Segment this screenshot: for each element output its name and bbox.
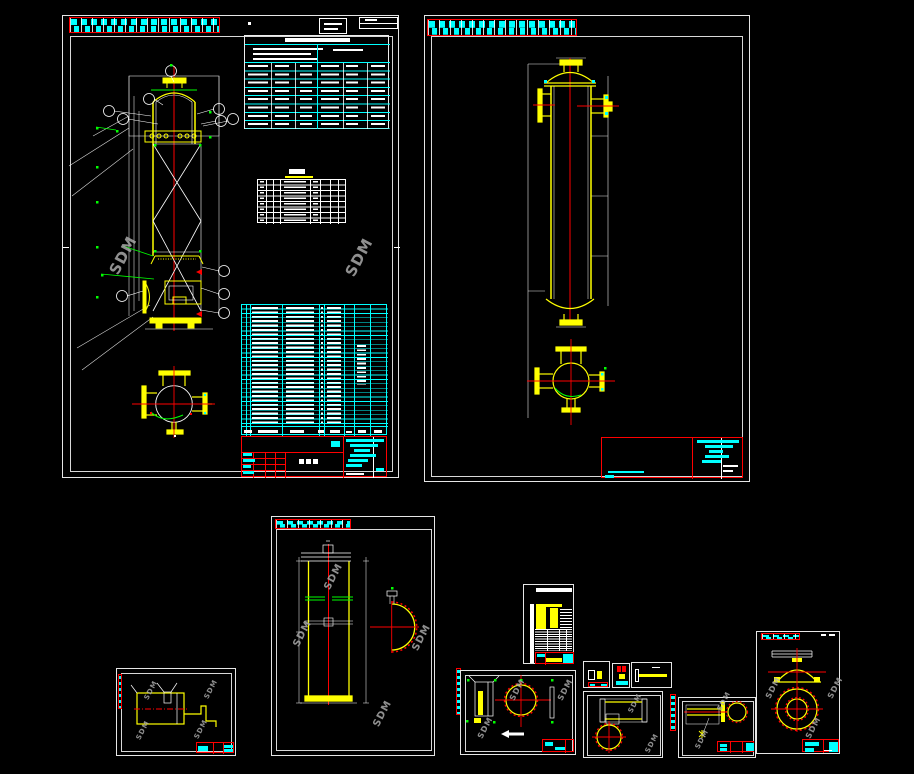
- table-header-bar: [536, 588, 572, 592]
- plan-view: [527, 339, 615, 425]
- block-line: [265, 452, 266, 478]
- table-line: [282, 305, 283, 436]
- title-text-bar: [709, 450, 723, 453]
- sleeve-side-view: [600, 699, 647, 724]
- table-line: [271, 63, 272, 129]
- sheet-shell-detail[interactable]: SDM SDM SDM SDM: [271, 516, 435, 756]
- block-line: [253, 452, 254, 478]
- side-nozzles: [538, 89, 612, 122]
- drawing-name-blob: [299, 459, 304, 464]
- shell-inner-lines: [554, 86, 588, 299]
- title-text-bar: [537, 654, 545, 657]
- table-line: [547, 629, 548, 651]
- table-line: [320, 180, 321, 224]
- cell-text-blobs: [321, 307, 323, 424]
- table-text-blob: [253, 48, 323, 50]
- cell-text-blobs: [284, 181, 306, 223]
- sheet-flange-detail[interactable]: SDM SDM SDM: [460, 670, 576, 755]
- table-title-blob: [285, 38, 350, 42]
- block-line: [565, 740, 566, 753]
- table-text-blob: [723, 465, 738, 467]
- sheet-detail-card-c[interactable]: [631, 662, 672, 688]
- cell-text-blobs: [321, 65, 339, 127]
- title-text-bar: [805, 748, 814, 752]
- title-text-bar: [346, 439, 384, 442]
- table-line: [338, 180, 339, 224]
- table-line: [280, 180, 281, 224]
- bom-header-row: [242, 426, 388, 436]
- table-line: [246, 305, 247, 436]
- table-text-blob: [253, 53, 311, 55]
- sheet-head-detail[interactable]: SDM SDM SDM: [756, 631, 840, 754]
- title-text-bar: [354, 449, 370, 452]
- title-text-bar: [746, 743, 754, 751]
- cell-text-blobs: [346, 65, 358, 127]
- nozzle-table-title-blob: [289, 169, 305, 174]
- side-view: [469, 676, 499, 716]
- cell-text-blobs: [371, 65, 385, 127]
- title-text-bar: [350, 444, 378, 447]
- table-text-blob: [824, 750, 832, 751]
- shell-inner-lines: [153, 95, 201, 311]
- title-block[interactable]: [542, 739, 574, 752]
- table-text-blob: [244, 430, 252, 433]
- table-line: [324, 305, 325, 436]
- title-underline: [285, 176, 313, 178]
- sheet-nozzle-detail[interactable]: SDM SDM: [678, 697, 756, 758]
- title-block[interactable]: [802, 739, 839, 752]
- cell-text-blobs: [357, 345, 366, 385]
- table-text-blob: [290, 430, 304, 433]
- block-line: [692, 438, 693, 479]
- title-text-bar: [702, 460, 721, 463]
- nozzle-orientation-view: [132, 366, 215, 438]
- title-text-bar: [705, 445, 733, 448]
- table-text-blob: [333, 49, 363, 51]
- leader-line: [652, 667, 660, 668]
- title-text-bar: [555, 747, 565, 750]
- table-line: [317, 44, 318, 129]
- title-text-bar: [590, 684, 595, 686]
- drawing-name-blob: [313, 459, 318, 464]
- nozzle-face-view: [727, 702, 748, 723]
- signature-bar: [243, 459, 255, 462]
- block-line: [213, 743, 214, 754]
- signature-bar: [243, 465, 251, 468]
- block-line: [730, 742, 731, 753]
- title-text-bar: [198, 746, 208, 751]
- table-line: [566, 629, 567, 651]
- nozzle-table[interactable]: [257, 179, 346, 223]
- table-text-blob: [346, 431, 352, 433]
- highlight-column: [536, 607, 546, 629]
- table-line: [344, 305, 345, 436]
- cad-canvas[interactable]: SDM SDM: [0, 0, 914, 774]
- part-fill: [597, 671, 602, 679]
- cell-text-blobs: [275, 65, 289, 127]
- table-line: [273, 180, 274, 224]
- cell-text-blobs: [260, 181, 264, 223]
- cell-text-blobs: [252, 307, 278, 424]
- title-block[interactable]: [241, 436, 387, 477]
- sheet-parts-table-card[interactable]: [523, 584, 574, 664]
- table-line: [310, 180, 311, 224]
- title-text-bar: [224, 749, 233, 752]
- revision-strip-vertical: [670, 694, 676, 731]
- table-text-blob: [258, 430, 278, 433]
- table-text-blob: [374, 430, 382, 433]
- table-line: [343, 63, 344, 129]
- sheet-detail-card-b[interactable]: [612, 663, 630, 688]
- top-cap: [301, 541, 351, 561]
- title-text-bar: [350, 454, 376, 457]
- cell-text-blobs: [286, 307, 314, 424]
- highlight-bar: [546, 658, 562, 662]
- ring-view: [592, 721, 626, 753]
- title-text-bar: [616, 681, 628, 685]
- highlight-column: [550, 608, 558, 628]
- title-text-bar: [224, 745, 233, 748]
- title-text-bar: [605, 475, 614, 478]
- table-line: [367, 63, 368, 129]
- part-fill: [619, 674, 625, 679]
- block-line: [823, 740, 824, 753]
- title-text-bar: [331, 441, 340, 447]
- title-text-bar: [720, 744, 727, 747]
- signature-bar: [243, 453, 252, 456]
- title-text-bar: [348, 459, 368, 462]
- table-line: [250, 305, 251, 436]
- block-line: [545, 653, 546, 665]
- title-text-bar: [601, 684, 607, 686]
- block-line: [275, 452, 276, 478]
- title-block[interactable]: [196, 742, 234, 753]
- table-side-bar: [530, 604, 534, 663]
- pipe-fill: [639, 674, 667, 677]
- table-text-blob: [318, 430, 324, 433]
- flange-tab: [474, 718, 481, 723]
- signature-bar: [243, 471, 254, 474]
- title-block[interactable]: [717, 741, 754, 752]
- sheet-vessel-elevation[interactable]: [424, 15, 750, 482]
- view-arrow: [501, 730, 524, 738]
- cell-text-blobs: [300, 65, 312, 127]
- title-text-bar: [720, 748, 727, 751]
- technical-spec-table[interactable]: [244, 35, 389, 129]
- title-block: [588, 682, 608, 687]
- table-text-blob: [330, 430, 340, 433]
- table-line: [559, 629, 560, 651]
- title-text-bar: [346, 464, 362, 467]
- table-rows: [560, 609, 572, 628]
- table-line: [266, 180, 267, 224]
- title-text-bar: [376, 468, 384, 471]
- gasket-marks: [544, 80, 608, 115]
- table-line: [330, 180, 331, 224]
- bottom-section: [143, 256, 203, 328]
- table-line: [354, 305, 355, 436]
- part-fill: [622, 666, 626, 672]
- construction-lines: [69, 76, 219, 370]
- block-line: [343, 437, 344, 478]
- vessel-elevation-view[interactable]: [425, 16, 751, 483]
- table-line: [319, 305, 320, 436]
- vessel-shell: [145, 78, 201, 256]
- title-block[interactable]: [535, 652, 574, 664]
- table-text-blob: [358, 430, 366, 433]
- table-line: [370, 305, 371, 436]
- block-line: [742, 742, 743, 753]
- title-text-bar: [608, 471, 644, 473]
- section-strip: [550, 687, 554, 718]
- table-text-blob: [346, 473, 364, 475]
- title-text-bar: [805, 742, 819, 746]
- drawing-name-blob: [306, 459, 311, 464]
- sheet-sleeve-detail[interactable]: SDM SDM: [583, 691, 663, 758]
- sheet-assembly-drawing[interactable]: SDM SDM: [62, 15, 399, 478]
- cell-text-blobs: [248, 65, 268, 127]
- table-text-blob: [723, 470, 733, 472]
- title-text-bar: [563, 654, 573, 663]
- cell-text-blobs: [313, 181, 318, 223]
- block-line: [285, 452, 286, 478]
- table-line: [295, 63, 296, 129]
- table-text-blob: [253, 58, 317, 60]
- title-text-bar: [545, 742, 553, 746]
- flange-section-fill: [478, 691, 483, 715]
- part-fill: [617, 666, 621, 672]
- sheet-detail-card-a[interactable]: [583, 661, 610, 688]
- part-outline: [588, 670, 595, 680]
- cell-text-blobs: [327, 307, 341, 424]
- sheet-bracket-detail[interactable]: SDM SDM SDM SDM: [116, 668, 236, 756]
- block-line: [242, 452, 343, 453]
- bill-of-materials-table[interactable]: [241, 304, 387, 435]
- title-text-bar: [697, 440, 739, 443]
- title-text-bar: [705, 455, 729, 458]
- title-block[interactable]: [601, 437, 743, 478]
